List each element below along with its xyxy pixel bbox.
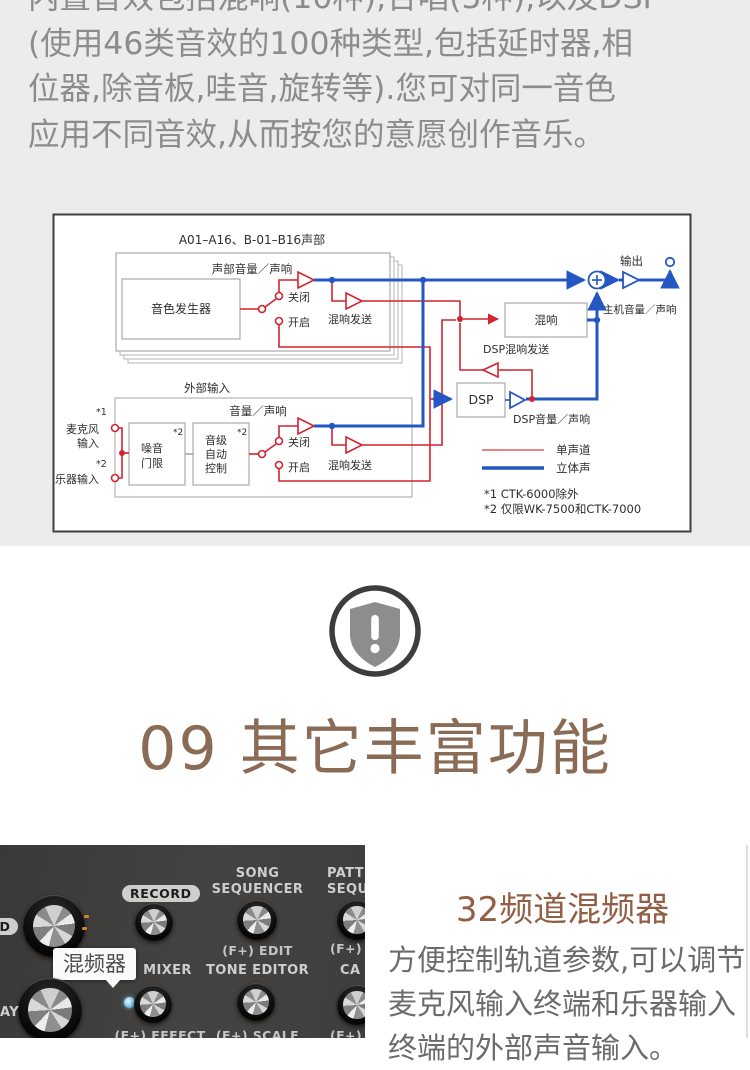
- dsp-box-label: DSP: [468, 392, 494, 407]
- mic-input-label: 麦克风: [66, 423, 99, 436]
- knob-tick: [84, 915, 89, 918]
- reverb-send-label: 混响发送: [328, 312, 372, 326]
- mixer-body-line: 终端的外部声音输入。: [388, 1026, 744, 1070]
- song-sequencer-line1: SONG: [236, 866, 280, 881]
- intro-paragraph: 内置音效包括混响(10种),合唱(5种),以及DSP (使用46类音效的100种…: [28, 0, 728, 158]
- instrument-input-label: 乐器输入: [55, 472, 99, 486]
- panel-label-partial-ord: ORD: [0, 918, 18, 935]
- mic-input-label2: 输入: [77, 436, 99, 450]
- shield-alert-icon: [327, 583, 423, 679]
- legend-mono-label: 单声道: [556, 443, 591, 457]
- record-knob: [135, 903, 173, 941]
- part-volume-label: 声部音量／声响: [212, 262, 293, 276]
- ext-volume-label: 音量／声响: [229, 404, 287, 418]
- footnote-mark-2: *2: [96, 459, 107, 470]
- intro-line: 位器,除音板,哇音,旋转等).您可对同一音色: [28, 67, 728, 113]
- keyboard-panel-photo: ORD RECORD SONG SEQUENCER (F+) EDIT PATT…: [0, 845, 365, 1038]
- ext-switch-on-label: 开启: [288, 461, 310, 474]
- switch-off-label: 关闭: [288, 290, 310, 304]
- knob-tick: [82, 927, 87, 930]
- feature-header-section: 09 其它丰富功能: [0, 546, 750, 845]
- intro-line: (使用46类音效的100种类型,包括延时器,相: [28, 22, 728, 68]
- mixer-feature-section: ORD RECORD SONG SEQUENCER (F+) EDIT PATT…: [0, 845, 750, 1038]
- pattern-sequencer-label: PATT SEQU: [327, 866, 365, 898]
- song-sequencer-knob: [237, 900, 277, 940]
- noise-gate-label2: 门限: [141, 456, 163, 470]
- intro-line: 内置音效包括混响(10种),合唱(5种),以及DSP: [28, 0, 728, 22]
- mixer-feature-body: 方便控制轨道参数,可以调节 麦克风输入终端和乐器输入 终端的外部声音输入。: [388, 938, 744, 1070]
- record-label: RECORD: [122, 885, 200, 902]
- feature-section-title: 09 其它丰富功能: [0, 700, 750, 787]
- f-effect-label: (F+) EFFECT: [100, 1028, 220, 1038]
- master-volume-label: 主机音量／声响: [603, 303, 677, 316]
- output-label: 输出: [620, 254, 643, 268]
- signal-flow-svg: A01–A16、B-01–B16声部 声部音量／声响 音色发生器 关闭 开启 混…: [52, 213, 692, 533]
- footnote-1: *1 CTK-6000除外: [484, 487, 579, 501]
- alc-label1: 音级: [205, 433, 227, 447]
- footnote-2: *2 仅限WK-7500和CTK-7000: [484, 502, 641, 516]
- mixer-knob: [134, 985, 172, 1023]
- f-edit-label: (F+) EDIT: [205, 943, 310, 958]
- intro-line: 应用不同音效,从而按您的意愿创作音乐。: [28, 113, 728, 159]
- mixer-feature-title: 32频道混频器: [375, 882, 750, 931]
- f-lo-label: (F+) LO: [330, 1028, 365, 1038]
- pattern-sequencer-line1: PATT: [327, 866, 364, 881]
- dsp-volume-label: DSP音量／声响: [513, 412, 590, 426]
- pattern-sequencer-line2: SEQU: [327, 882, 365, 897]
- mixer-body-line: 方便控制轨道参数,可以调节: [388, 938, 744, 982]
- mixer-body-line: 麦克风输入终端和乐器输入: [388, 982, 744, 1026]
- legend-stereo-label: 立体声: [556, 461, 591, 475]
- ext-reverb-send-label: 混响发送: [328, 458, 372, 472]
- switch-on-label: 开启: [288, 316, 310, 329]
- alc-fn2: *2: [237, 428, 247, 438]
- tone-generator-label: 音色发生器: [151, 301, 211, 316]
- f-plus-label: (F+): [330, 941, 365, 956]
- panel-label-partial-ca: CA: [340, 963, 365, 979]
- right-edge-border: [746, 845, 748, 1038]
- panel-knob-right: [337, 985, 365, 1025]
- footnote-mark-1: *1: [96, 407, 107, 418]
- dsp-reverb-send-label: DSP混响发送: [483, 342, 549, 356]
- f-scale-label: (F+) SCALE: [205, 1028, 310, 1038]
- pattern-sequencer-knob: [337, 900, 365, 940]
- alc-label2: 自动: [205, 448, 227, 461]
- ext-switch-off-label: 关闭: [288, 435, 310, 449]
- reverb-box-label: 混响: [535, 313, 558, 327]
- output-jack: [666, 258, 674, 266]
- song-sequencer-label: SONG SEQUENCER: [205, 866, 310, 898]
- diagram-title: A01–A16、B-01–B16声部: [179, 232, 325, 247]
- alc-label3: 控制: [205, 461, 227, 475]
- signal-flow-diagram: A01–A16、B-01–B16声部 声部音量／声响 音色发生器 关闭 开启 混…: [52, 213, 692, 533]
- tone-editor-label: TONE EDITOR: [200, 963, 315, 979]
- song-sequencer-line2: SEQUENCER: [212, 882, 304, 897]
- noise-gate-label1: 噪音: [141, 441, 163, 455]
- noise-gate-fn2: *2: [173, 428, 183, 438]
- panel-label-partial-ay: AY: [0, 1005, 30, 1021]
- intro-section: 内置音效包括混响(10种),合唱(5种),以及DSP (使用46类音效的100种…: [0, 0, 750, 546]
- ext-input-title: 外部输入: [184, 381, 230, 395]
- tone-editor-knob: [237, 983, 275, 1021]
